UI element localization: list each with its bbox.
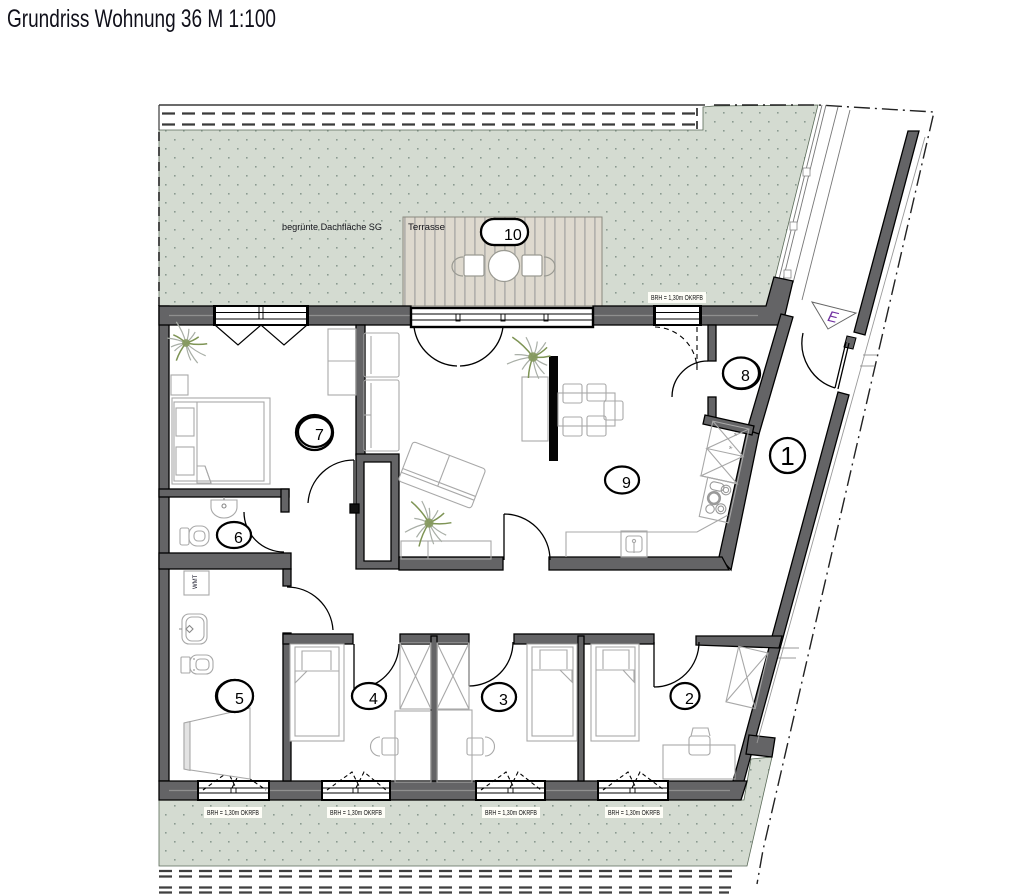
svg-text:BRH = 1,30m OKRFB: BRH = 1,30m OKRFB [608,810,660,817]
svg-text:5: 5 [235,691,244,708]
svg-text:BRH = 1,30m OKRFB: BRH = 1,30m OKRFB [330,810,382,817]
svg-text:2: 2 [685,691,694,708]
svg-text:Terrasse: Terrasse [408,222,445,232]
svg-text:4: 4 [369,691,378,708]
svg-text:BRH = 1,30m OKRFB: BRH = 1,30m OKRFB [485,810,537,817]
svg-text:BRH = 1,30m OKRFB: BRH = 1,30m OKRFB [651,295,703,302]
svg-text:BRH = 1,30m OKRFB: BRH = 1,30m OKRFB [207,810,259,817]
svg-text:10: 10 [504,227,522,244]
svg-text:Grundriss Wohnung 36 M 1:100: Grundriss Wohnung 36 M 1:100 [7,5,276,33]
svg-text:7: 7 [315,427,324,444]
svg-text:1: 1 [780,441,794,471]
svg-text:begrünte Dachfläche SG: begrünte Dachfläche SG [282,222,382,232]
svg-text:8: 8 [741,368,750,385]
svg-text:*: * [732,431,738,443]
svg-text:6: 6 [234,530,243,547]
svg-text:9: 9 [622,475,631,492]
svg-text:3: 3 [499,692,508,709]
svg-text:WMT: WMT [193,574,199,589]
